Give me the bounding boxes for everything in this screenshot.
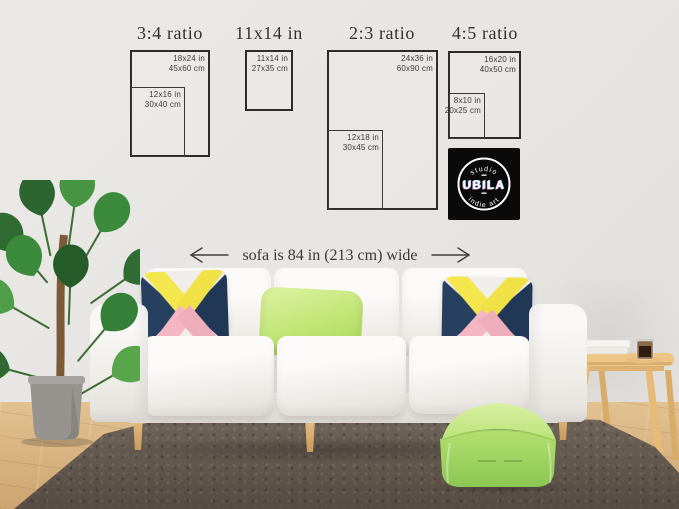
sofa-width-text: sofa is 84 in (213 cm) wide: [242, 247, 417, 264]
frame-12x16: 12x16 in 30x40 cm: [131, 87, 185, 157]
frame-size-label: 12x18 in 30x45 cm: [343, 133, 379, 152]
frame-12x18: 12x18 in 30x45 cm: [328, 130, 383, 210]
ratio-title-2-3: 2:3 ratio: [349, 23, 415, 44]
ratio-title-3-4: 3:4 ratio: [137, 23, 203, 44]
table-top-edge: [582, 362, 672, 365]
frame-size-label: 18x24 in 45x60 cm: [169, 54, 205, 73]
pouf-front-face: [440, 430, 556, 487]
logo-name-text: UBILA: [463, 180, 506, 192]
brand-logo: studio UBILA UBILA UBILA indie art: [448, 148, 520, 220]
book-bottom: [582, 347, 628, 354]
logo-dash-bottom: [482, 193, 487, 194]
sofa-width-annotation: sofa is 84 in (213 cm) wide: [186, 242, 474, 268]
table-leg-rear-right: [665, 370, 679, 460]
ratio-title-4-5: 4:5 ratio: [452, 23, 518, 44]
candle-wax: [639, 346, 651, 357]
plant-pot-rim: [28, 376, 85, 384]
frame-11x14: 11x14 in 27x35 cm: [245, 50, 293, 111]
frame-size-label: 24x36 in 60x90 cm: [397, 54, 433, 73]
frame-size-label: 16x20 in 40x50 cm: [480, 55, 516, 74]
frame-size-label: 11x14 in 27x35 cm: [252, 54, 288, 73]
sofa-seat-cushion: [143, 336, 274, 416]
product-mockup: 3:4 ratio 11x14 in 2:3 ratio 4:5 ratio 1…: [0, 0, 679, 509]
frame-8x10: 8x10 in 20x25 cm: [449, 93, 485, 139]
frame-size-label: 8x10 in 20x25 cm: [445, 96, 481, 115]
green-pouf: [432, 395, 564, 490]
ratio-title-11x14: 11x14 in: [235, 23, 303, 44]
frame-size-label: 12x16 in 30x40 cm: [145, 90, 181, 109]
logo-dash-top: [482, 175, 487, 176]
monstera-plant: [0, 180, 140, 465]
sofa-seat-cushion: [277, 336, 406, 416]
